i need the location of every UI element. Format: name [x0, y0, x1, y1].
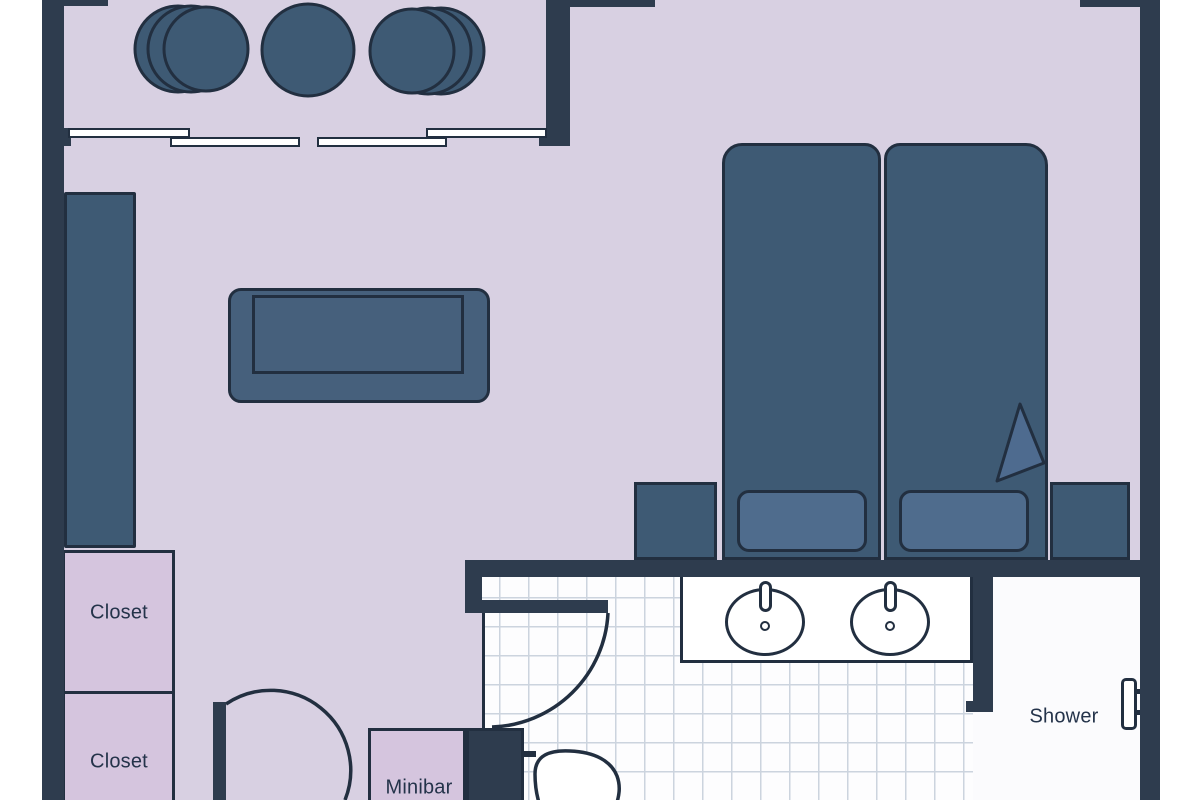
closet-lower-label: Closet	[90, 751, 148, 774]
console-desk	[64, 192, 136, 548]
wall-bathroom-left-jamb	[465, 560, 482, 613]
wall-top-middle	[546, 0, 655, 7]
sink-left-drain-icon	[760, 621, 770, 631]
minibar-label: Minibar	[386, 777, 453, 800]
faucet-left-icon	[759, 581, 772, 612]
pillow-right	[899, 490, 1029, 552]
wall-top-right	[1080, 0, 1142, 7]
sofa	[228, 288, 490, 403]
minibar-cabinet	[466, 728, 524, 800]
shower-label: Shower	[1029, 706, 1098, 729]
bathroom-floor-edge	[482, 613, 485, 728]
floor-plan: Closet Closet Minibar Shower	[0, 0, 1200, 800]
shower-control	[1121, 678, 1137, 730]
nightstand-left	[634, 482, 717, 560]
closet-lower	[62, 691, 175, 800]
sofa-seat-cushion	[252, 295, 464, 374]
sink-right-drain-icon	[885, 621, 895, 631]
window-panel-4	[426, 128, 547, 138]
wall-balcony-right	[546, 0, 570, 146]
bathroom-door-leaf	[482, 600, 608, 613]
faucet-right-icon	[884, 581, 897, 612]
wall-bathroom-top	[465, 560, 1140, 577]
wall-right	[1140, 0, 1160, 800]
closet-upper-label: Closet	[90, 602, 148, 625]
shower-area-floor	[973, 577, 1140, 800]
wall-shower-divider	[973, 577, 993, 712]
entry-door-leaf	[213, 702, 226, 800]
wall-shower-divider-foot	[966, 701, 993, 712]
window-panel-3	[317, 137, 447, 147]
pillow-left	[737, 490, 867, 552]
wall-top-left	[42, 0, 108, 6]
nightstand-right	[1050, 482, 1130, 560]
wall-left	[42, 0, 64, 800]
window-panel-2	[170, 137, 300, 147]
